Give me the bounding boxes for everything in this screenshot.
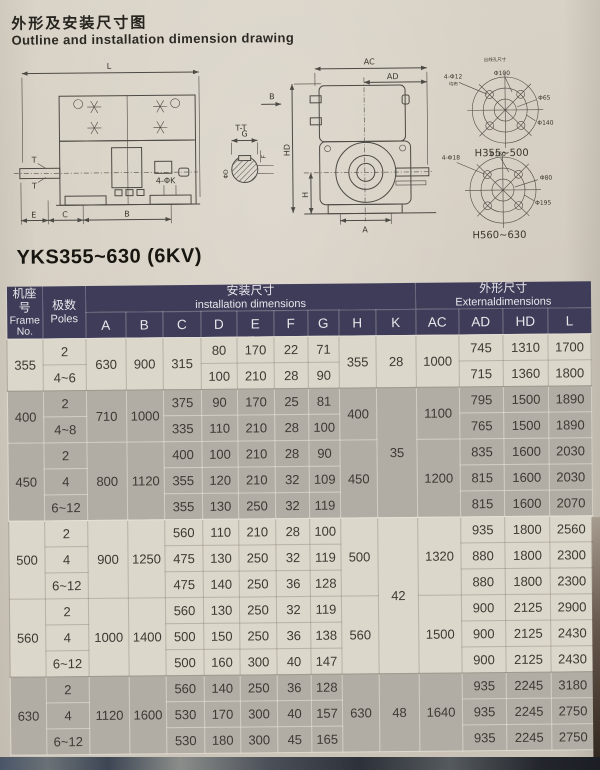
dim-cell: 100 bbox=[201, 363, 237, 389]
dim-cell: 130 bbox=[203, 545, 239, 571]
dim-cell: 28 bbox=[274, 362, 308, 388]
header-poles-en: Poles bbox=[43, 313, 85, 325]
dim-cell: 355 bbox=[164, 493, 202, 519]
poles-cell: 4~6 bbox=[43, 364, 86, 390]
dim-cell: 765 bbox=[460, 412, 504, 438]
dim-cell: 40 bbox=[277, 700, 311, 726]
col-F: F bbox=[274, 310, 308, 336]
dim-cell: 745 bbox=[459, 334, 503, 360]
flange-top-dist-label: 均布 bbox=[449, 80, 459, 87]
dim-cell: 110 bbox=[202, 415, 238, 441]
dim-cell: 165 bbox=[312, 726, 343, 752]
dim-cell: 1640 bbox=[419, 673, 463, 751]
dim-cell: 147 bbox=[311, 648, 342, 674]
dim-cell: 935 bbox=[462, 698, 506, 724]
header-external-en: Externaldimensions bbox=[416, 295, 591, 309]
dim-cell: 119 bbox=[310, 544, 341, 570]
h-cell: 400 bbox=[339, 388, 376, 440]
dim-cell: 109 bbox=[309, 466, 340, 492]
dim-cell: 1120 bbox=[127, 442, 165, 520]
dim-label-G: G bbox=[241, 129, 247, 138]
dim-cell: 120 bbox=[202, 467, 238, 493]
dim-cell: 157 bbox=[311, 700, 342, 726]
dim-cell: 36 bbox=[277, 622, 311, 648]
dim-cell: 1000 bbox=[88, 598, 129, 676]
dim-cell: 90 bbox=[201, 389, 237, 415]
dim-cell: 815 bbox=[460, 464, 504, 490]
dim-cell: 40 bbox=[277, 648, 311, 674]
dim-cell: 150 bbox=[204, 623, 240, 649]
view-label-T-upper: T bbox=[31, 156, 37, 165]
dim-cell: 1200 bbox=[417, 439, 461, 517]
dim-cell: 1360 bbox=[503, 360, 548, 386]
flange-bottom-drawing bbox=[457, 152, 542, 229]
frame-cell: 560 bbox=[9, 599, 46, 677]
dim-cell: 2030 bbox=[549, 438, 592, 464]
dim-cell: 160 bbox=[204, 649, 240, 675]
dim-cell: 935 bbox=[461, 516, 505, 542]
dim-cell: 130 bbox=[202, 493, 238, 519]
dim-cell: 2245 bbox=[506, 698, 551, 724]
dim-cell: 715 bbox=[459, 360, 503, 386]
dim-cell: 128 bbox=[311, 674, 342, 700]
frame-cell: 355 bbox=[7, 339, 43, 391]
dim-cell: 475 bbox=[165, 571, 203, 597]
dim-cell: 1600 bbox=[504, 490, 549, 516]
dim-cell: 1250 bbox=[128, 520, 166, 598]
dim-cell: 140 bbox=[203, 571, 239, 597]
dim-cell: 180 bbox=[205, 727, 241, 753]
dim-cell: 1000 bbox=[416, 335, 459, 387]
dim-cell: 2030 bbox=[549, 464, 592, 490]
dim-cell: 36 bbox=[277, 674, 311, 700]
dim-cell: 1000 bbox=[126, 390, 163, 442]
poles-cell: 6~12 bbox=[44, 494, 87, 520]
page-content: 外形及安装尺寸图 Outline and installation dimens… bbox=[0, 0, 600, 770]
dim-cell: 500 bbox=[166, 623, 204, 649]
dim-cell: 795 bbox=[459, 386, 503, 412]
col-B: B bbox=[126, 312, 163, 338]
dim-cell: 900 bbox=[461, 594, 505, 620]
col-HD: HD bbox=[503, 308, 548, 334]
h-cell: 630 bbox=[342, 674, 380, 752]
frame-cell: 630 bbox=[10, 677, 47, 755]
dim-label-HD: HD bbox=[283, 144, 292, 156]
dim-cell: 36 bbox=[276, 570, 310, 596]
dim-label-C: C bbox=[62, 210, 68, 219]
dim-cell: 1700 bbox=[548, 334, 591, 360]
dim-label-H: H bbox=[301, 192, 310, 198]
frame-cell: 400 bbox=[7, 391, 43, 443]
page-title-en: Outline and installation dimension drawi… bbox=[11, 30, 294, 48]
dim-cell: 130 bbox=[203, 597, 239, 623]
dim-cell: 1800 bbox=[548, 360, 591, 386]
dim-cell: 100 bbox=[309, 414, 340, 440]
col-D: D bbox=[201, 311, 237, 337]
dim-cell: 880 bbox=[461, 568, 505, 594]
header-external: 外形尺寸 Externaldimensions bbox=[415, 281, 590, 309]
col-L: L bbox=[548, 308, 591, 334]
fan-symbols bbox=[74, 99, 180, 135]
dim-cell: 250 bbox=[239, 597, 276, 623]
dim-cell: 1310 bbox=[503, 334, 548, 360]
dim-cell: 1120 bbox=[89, 676, 130, 754]
model-label: YKS355~630 (6KV) bbox=[17, 245, 203, 270]
flange-top-bolt-label: 4-Φ12 bbox=[444, 73, 463, 80]
dim-cell: 475 bbox=[165, 545, 203, 571]
dim-cell: 2300 bbox=[550, 568, 593, 594]
dim-cell: 1600 bbox=[504, 438, 549, 464]
dim-cell: 250 bbox=[240, 623, 277, 649]
dim-cell: 128 bbox=[310, 570, 341, 596]
dim-label-E: E bbox=[31, 211, 36, 220]
dim-cell: 250 bbox=[238, 493, 275, 519]
k-cell: 48 bbox=[379, 673, 420, 751]
dim-cell: 560 bbox=[165, 597, 203, 623]
page-title-zh: 外形及安装尺寸图 bbox=[11, 11, 147, 33]
col-G: G bbox=[308, 310, 339, 336]
k-cell: 42 bbox=[378, 517, 420, 673]
dim-cell: 800 bbox=[87, 442, 128, 520]
dim-cell: 138 bbox=[311, 622, 342, 648]
dim-cell: 1500 bbox=[503, 386, 548, 412]
dim-cell: 630 bbox=[86, 338, 126, 390]
flange-top-d3-label: Φ140 bbox=[537, 120, 553, 127]
dim-cell: 81 bbox=[308, 388, 339, 414]
dim-cell: 32 bbox=[275, 492, 309, 518]
col-AC: AC bbox=[416, 309, 459, 335]
dim-cell: 170 bbox=[204, 701, 240, 727]
dim-cell: 900 bbox=[126, 338, 163, 390]
poles-cell: 4 bbox=[44, 468, 87, 494]
dim-cell: 2300 bbox=[550, 542, 593, 568]
dim-cell: 300 bbox=[240, 701, 277, 727]
outline-drawing-figure: L E C B T T 4-ΦK T-T G F ΦD bbox=[0, 51, 599, 249]
dim-cell: 250 bbox=[240, 675, 277, 701]
view-label-B: B bbox=[269, 92, 275, 101]
flange-top-drawing bbox=[459, 72, 544, 149]
dim-cell: 835 bbox=[460, 438, 504, 464]
dim-cell: 935 bbox=[462, 672, 506, 698]
shaft-section-drawing bbox=[232, 140, 274, 182]
dim-cell: 32 bbox=[276, 596, 310, 622]
poles-cell: 4 bbox=[45, 546, 88, 572]
dim-cell: 2125 bbox=[506, 646, 551, 672]
col-AD: AD bbox=[459, 308, 503, 334]
dim-cell: 1890 bbox=[549, 412, 592, 438]
dim-cell: 250 bbox=[239, 571, 276, 597]
dim-label-A: A bbox=[362, 225, 368, 234]
dim-cell: 560 bbox=[165, 519, 203, 545]
dim-cell: 32 bbox=[276, 544, 310, 570]
flange-bottom-caption: H560~630 bbox=[472, 230, 526, 242]
poles-cell: 6~12 bbox=[45, 572, 88, 598]
k-cell: 28 bbox=[376, 335, 417, 387]
dim-cell: 1600 bbox=[504, 464, 549, 490]
dim-cell: 315 bbox=[163, 337, 201, 389]
flange-bottom-d3-label: Φ195 bbox=[535, 200, 551, 207]
dim-cell: 210 bbox=[238, 415, 275, 441]
frame-cell: 450 bbox=[8, 443, 45, 521]
dim-cell: 300 bbox=[241, 727, 278, 753]
dim-cell: 2245 bbox=[507, 724, 552, 750]
dim-cell: 300 bbox=[240, 649, 277, 675]
dim-cell: 28 bbox=[276, 518, 310, 544]
flange-bottom-d2-label: Φ80 bbox=[540, 175, 553, 182]
h-cell: 450 bbox=[340, 440, 378, 518]
table-body: 3552630900315801702271355281000745131017… bbox=[7, 334, 595, 756]
dim-cell: 530 bbox=[166, 701, 204, 727]
poles-cell: 6~12 bbox=[46, 650, 89, 676]
dim-cell: 2900 bbox=[550, 594, 593, 620]
header-frame-zh: 机座号 bbox=[7, 288, 42, 316]
dim-cell: 935 bbox=[463, 724, 507, 750]
dim-cell: 2430 bbox=[551, 620, 594, 646]
k-cell: 35 bbox=[376, 387, 417, 517]
header-install: 安装尺寸 installation dimensions bbox=[85, 283, 415, 313]
dim-cell: 1400 bbox=[128, 598, 166, 676]
h-cell: 355 bbox=[339, 336, 376, 388]
dim-label-B: B bbox=[124, 210, 130, 219]
h-cell: 500 bbox=[341, 518, 379, 596]
dim-cell: 210 bbox=[237, 363, 274, 389]
poles-cell: 4 bbox=[46, 702, 89, 728]
col-H: H bbox=[339, 310, 376, 336]
dim-cell: 2125 bbox=[506, 620, 551, 646]
dim-cell: 119 bbox=[310, 596, 341, 622]
photo-edge-shadow bbox=[591, 517, 600, 759]
dim-cell: 170 bbox=[237, 389, 274, 415]
dim-cell: 2750 bbox=[551, 698, 594, 724]
dim-cell: 355 bbox=[164, 467, 202, 493]
dim-cell: 375 bbox=[163, 389, 201, 415]
poles-cell: 2 bbox=[46, 676, 89, 702]
dim-cell: 1800 bbox=[505, 568, 550, 594]
dim-cell: 210 bbox=[238, 441, 275, 467]
dim-cell: 2430 bbox=[551, 646, 594, 672]
catalog-page: 外形及安装尺寸图 Outline and installation dimens… bbox=[0, 0, 600, 770]
dim-cell: 90 bbox=[308, 362, 339, 388]
flange-top-note: 出线孔尺寸 bbox=[484, 56, 507, 63]
dim-cell: 110 bbox=[203, 519, 239, 545]
dim-cell: 80 bbox=[201, 337, 237, 363]
col-A: A bbox=[86, 312, 126, 338]
dim-cell: 32 bbox=[275, 466, 309, 492]
dim-cell: 119 bbox=[309, 492, 340, 518]
poles-cell: 2 bbox=[45, 598, 88, 624]
dim-label-AD: AD bbox=[387, 72, 399, 81]
h-cell: 560 bbox=[341, 596, 379, 674]
header-frame-en: Frame No. bbox=[7, 315, 42, 337]
dim-cell: 900 bbox=[88, 520, 129, 598]
dim-label-AC: AC bbox=[364, 57, 375, 66]
dim-cell: 90 bbox=[309, 440, 340, 466]
header-poles: 极数 Poles bbox=[42, 286, 86, 339]
dim-cell: 100 bbox=[202, 441, 238, 467]
dim-cell: 560 bbox=[166, 675, 204, 701]
dim-cell: 2125 bbox=[505, 594, 550, 620]
dim-cell: 335 bbox=[164, 415, 202, 441]
dim-cell: 2560 bbox=[550, 516, 593, 542]
dim-cell: 710 bbox=[86, 390, 126, 442]
poles-cell: 2 bbox=[43, 390, 86, 416]
dim-cell: 71 bbox=[308, 336, 339, 362]
poles-cell: 4~8 bbox=[44, 416, 87, 442]
poles-cell: 2 bbox=[45, 520, 88, 546]
dim-cell: 2070 bbox=[549, 490, 592, 516]
dimension-table: 机座号 Frame No. 极数 Poles 安装尺寸 installation… bbox=[6, 281, 595, 755]
dim-cell: 2750 bbox=[552, 724, 595, 750]
side-view-drawing bbox=[13, 72, 200, 225]
poles-cell: 2 bbox=[43, 338, 86, 364]
dim-cell: 28 bbox=[275, 440, 309, 466]
poles-cell: 4 bbox=[46, 624, 89, 650]
poles-cell: 6~12 bbox=[47, 728, 90, 754]
dim-cell: 500 bbox=[166, 649, 204, 675]
dim-cell: 100 bbox=[310, 518, 341, 544]
dim-label-F: F bbox=[261, 154, 268, 158]
frame-cell: 500 bbox=[9, 521, 46, 599]
dim-cell: 880 bbox=[461, 542, 505, 568]
dim-cell: 3180 bbox=[551, 672, 594, 698]
flange-bottom-bolt-label: 4-Φ18 bbox=[442, 154, 461, 161]
dim-cell: 815 bbox=[460, 490, 504, 516]
dim-cell: 2245 bbox=[506, 672, 551, 698]
dim-cell: 400 bbox=[164, 441, 202, 467]
col-E: E bbox=[237, 311, 274, 337]
col-C: C bbox=[163, 311, 201, 337]
dim-cell: 1800 bbox=[505, 542, 550, 568]
header-poles-zh: 极数 bbox=[43, 299, 85, 313]
dim-cell: 210 bbox=[239, 519, 276, 545]
dim-cell: 530 bbox=[167, 727, 205, 753]
dim-label-L: L bbox=[107, 62, 112, 71]
flange-bottom-d1-label: Φ160 bbox=[490, 151, 506, 158]
dim-cell: 22 bbox=[274, 336, 308, 362]
header-frame: 机座号 Frame No. bbox=[6, 286, 43, 339]
photo-bottom-edge bbox=[0, 757, 600, 770]
dim-cell: 1500 bbox=[504, 412, 549, 438]
dim-cell: 28 bbox=[275, 414, 309, 440]
dim-cell: 1890 bbox=[548, 386, 591, 412]
dim-cell: 140 bbox=[204, 675, 240, 701]
dim-cell: 1600 bbox=[129, 676, 167, 754]
dim-cell: 900 bbox=[462, 620, 506, 646]
dim-cell: 170 bbox=[237, 337, 274, 363]
dim-cell: 25 bbox=[274, 388, 308, 414]
dim-cell: 1320 bbox=[418, 517, 462, 595]
dim-label-foot-holes: 4-ΦK bbox=[156, 176, 176, 185]
dim-cell: 1500 bbox=[418, 595, 462, 673]
flange-top-d2-label: Φ65 bbox=[538, 95, 551, 102]
dim-cell: 45 bbox=[278, 726, 312, 752]
flange-top-d1-label: Φ100 bbox=[494, 70, 510, 77]
view-label-T-lower: T bbox=[31, 182, 37, 191]
dim-cell: 1100 bbox=[416, 387, 459, 439]
dim-label-phiD: ΦD bbox=[223, 169, 230, 179]
dim-cell: 900 bbox=[462, 646, 506, 672]
col-K: K bbox=[376, 309, 416, 335]
dim-cell: 250 bbox=[239, 545, 276, 571]
poles-cell: 2 bbox=[44, 442, 87, 468]
dim-cell: 1800 bbox=[505, 516, 550, 542]
dim-cell: 210 bbox=[238, 467, 275, 493]
